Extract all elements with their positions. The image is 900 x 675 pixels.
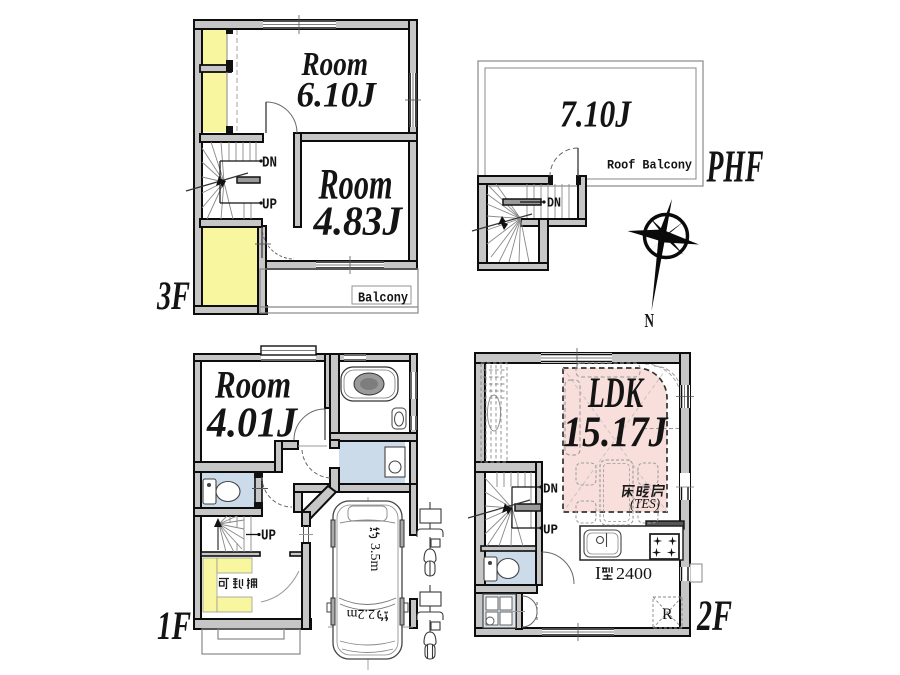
svg-text:I: I	[595, 563, 601, 583]
svg-text:Roof Balcony: Roof Balcony	[607, 159, 692, 173]
svg-text:1F: 1F	[157, 603, 191, 648]
svg-text:4.01J: 4.01J	[206, 401, 299, 447]
svg-text:2400: 2400	[616, 564, 652, 583]
svg-text:DN: DN	[547, 197, 561, 212]
svg-text:4.83J: 4.83J	[313, 198, 404, 244]
svg-text:DN: DN	[262, 156, 277, 172]
svg-text:7.10J: 7.10J	[560, 94, 632, 136]
svg-text:DN: DN	[543, 482, 558, 498]
svg-text:PHF: PHF	[706, 141, 764, 192]
svg-text:15.17J: 15.17J	[563, 409, 669, 456]
svg-text:UP: UP	[543, 523, 558, 539]
svg-text:R: R	[662, 606, 673, 623]
svg-text:N: N	[645, 310, 655, 332]
svg-text:UP: UP	[262, 198, 277, 214]
svg-text:3F: 3F	[156, 273, 190, 318]
svg-text:UP: UP	[261, 529, 276, 545]
svg-text:2.2m: 2.2m	[347, 606, 376, 621]
svg-text:6.10J: 6.10J	[297, 75, 377, 115]
svg-text:(TES): (TES)	[630, 497, 660, 512]
svg-text:3.5m: 3.5m	[367, 543, 382, 572]
svg-text:2F: 2F	[696, 593, 732, 640]
svg-text:Balcony: Balcony	[358, 291, 409, 307]
